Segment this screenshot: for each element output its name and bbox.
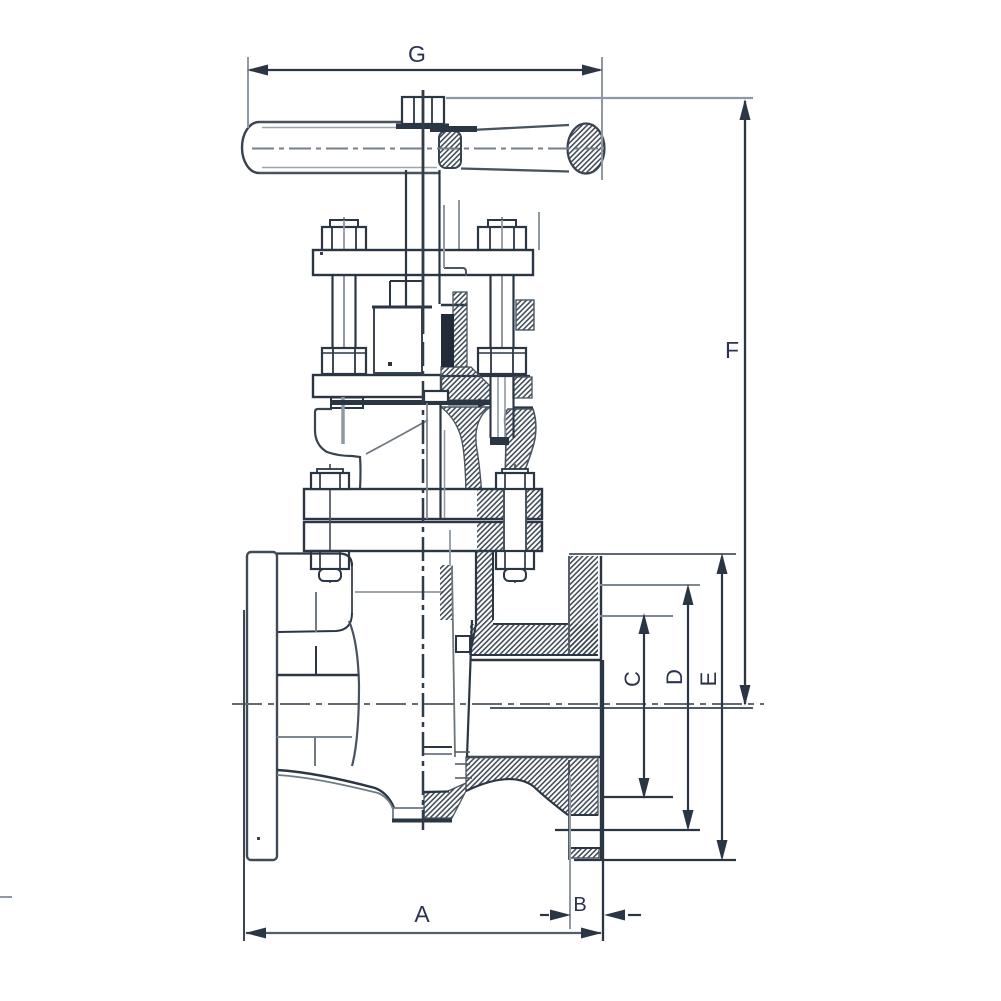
svg-text:G: G <box>408 41 426 67</box>
svg-text:C: C <box>620 671 645 687</box>
svg-text:D: D <box>662 669 687 685</box>
svg-text:E: E <box>696 672 721 687</box>
svg-text:F: F <box>725 337 739 363</box>
svg-text:A: A <box>414 901 430 927</box>
svg-text:B: B <box>573 894 586 916</box>
